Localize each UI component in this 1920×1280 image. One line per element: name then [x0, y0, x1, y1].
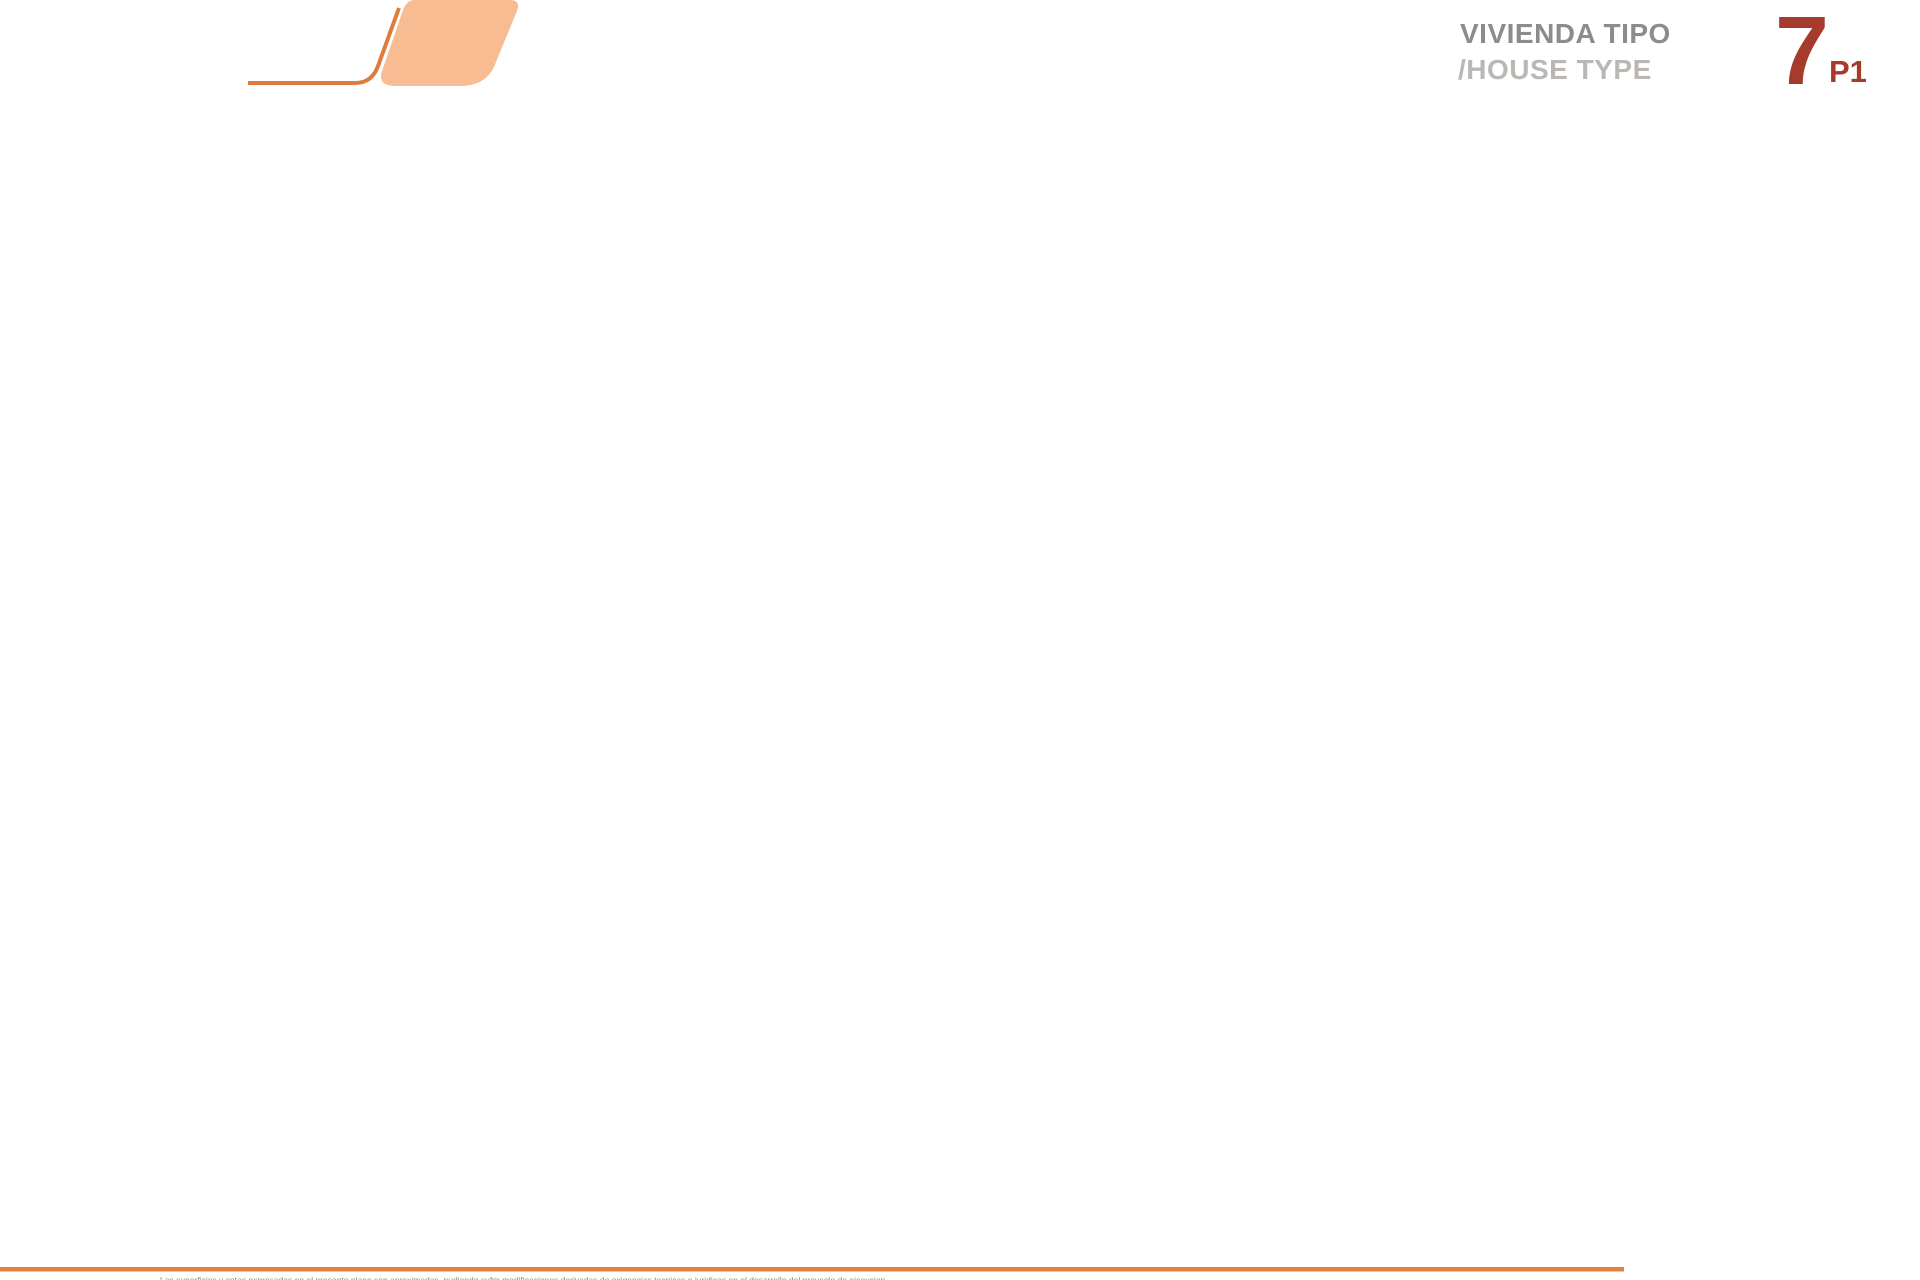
svg-text:P1: P1 — [1829, 54, 1867, 89]
svg-text:/HOUSE TYPE: /HOUSE TYPE — [1458, 54, 1652, 85]
svg-text:VIVIENDA TIPO: VIVIENDA TIPO — [1460, 18, 1671, 49]
svg-text:Las superficies y cotas expres: Las superficies y cotas expresadas en el… — [160, 1275, 888, 1280]
svg-text:7: 7 — [1775, 0, 1829, 105]
